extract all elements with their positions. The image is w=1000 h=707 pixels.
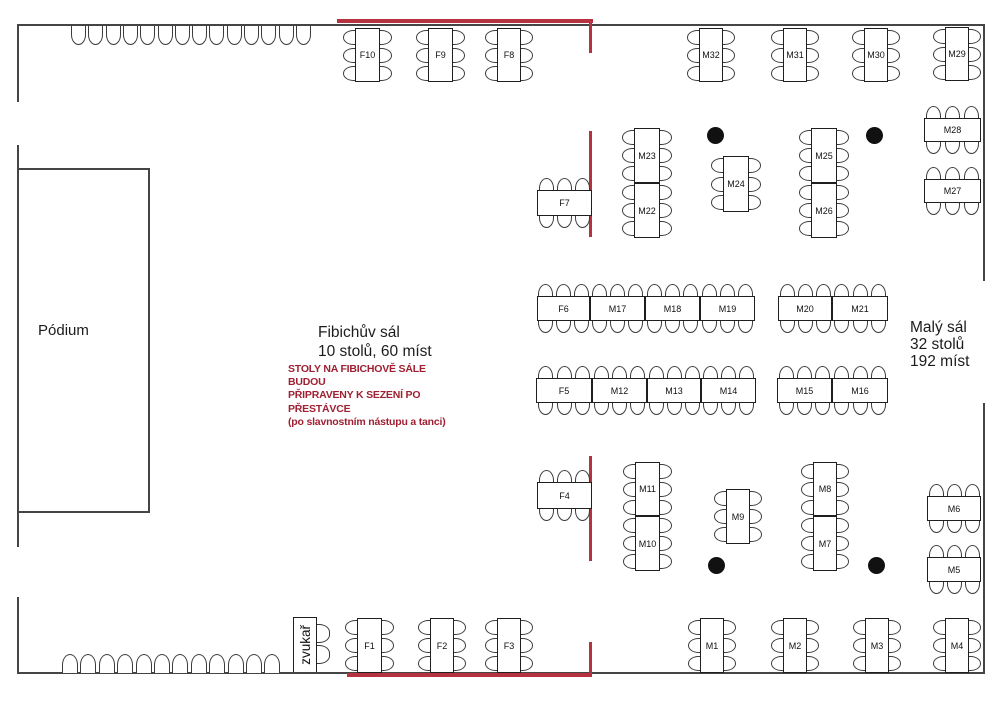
- chair: [244, 26, 259, 45]
- chair: [780, 320, 795, 333]
- chair: [88, 26, 103, 45]
- chair: [723, 656, 736, 671]
- chair: [379, 48, 392, 63]
- chair: [317, 624, 330, 643]
- chair: [965, 520, 980, 533]
- table-m14: M14: [701, 378, 756, 403]
- chair: [539, 508, 554, 521]
- chair: [836, 464, 849, 479]
- chair: [279, 26, 294, 45]
- table-m16: M16: [832, 378, 888, 403]
- maly-hall-label: Malý sál 32 stolů 192 míst: [910, 319, 969, 370]
- chair: [968, 65, 981, 80]
- chair: [945, 202, 960, 215]
- pillar: [707, 127, 724, 144]
- table-f7: F7: [537, 190, 592, 216]
- chair: [453, 620, 466, 635]
- chair: [836, 482, 849, 497]
- chair: [749, 491, 762, 506]
- chair: [574, 320, 589, 333]
- chair: [227, 26, 242, 45]
- chair: [649, 402, 664, 415]
- chair: [722, 30, 735, 45]
- table-m24: M24: [723, 156, 749, 212]
- chair: [659, 464, 672, 479]
- chair: [192, 26, 207, 45]
- chair: [123, 26, 138, 45]
- chair: [749, 509, 762, 524]
- chair: [659, 221, 672, 236]
- chair: [520, 656, 533, 671]
- chair: [71, 26, 86, 45]
- chair: [836, 221, 849, 236]
- wall-segment: [17, 145, 19, 547]
- table-m26: M26: [811, 183, 837, 238]
- table-m28: M28: [924, 118, 981, 142]
- chair: [261, 26, 276, 45]
- table-f8: F8: [497, 28, 521, 82]
- chair: [556, 320, 571, 333]
- pillar: [708, 557, 725, 574]
- chair: [836, 500, 849, 515]
- chair: [887, 48, 900, 63]
- chair: [871, 402, 886, 415]
- pillar: [866, 127, 883, 144]
- chair: [836, 203, 849, 218]
- chair: [539, 215, 554, 228]
- chair: [520, 66, 533, 81]
- chair: [106, 26, 121, 45]
- chair: [815, 402, 830, 415]
- table-m25: M25: [811, 128, 837, 183]
- wall-segment: [17, 24, 19, 102]
- chair: [853, 402, 868, 415]
- chair: [228, 654, 244, 673]
- chair: [140, 26, 155, 45]
- chair: [659, 185, 672, 200]
- chair: [685, 402, 700, 415]
- chair: [720, 320, 735, 333]
- chair: [379, 66, 392, 81]
- table-m13: M13: [647, 378, 701, 403]
- chair: [748, 195, 761, 210]
- chair: [381, 656, 394, 671]
- chair: [659, 482, 672, 497]
- chair: [947, 520, 962, 533]
- chair: [926, 202, 941, 215]
- chair: [836, 185, 849, 200]
- chair: [665, 320, 680, 333]
- chair: [191, 654, 207, 673]
- table-m4: M4: [945, 618, 969, 673]
- chair: [158, 26, 173, 45]
- chair: [659, 500, 672, 515]
- wall-segment: [17, 597, 19, 674]
- chair: [798, 320, 813, 333]
- chair: [968, 656, 981, 671]
- chair: [667, 402, 682, 415]
- chair: [887, 30, 900, 45]
- red-partition: [347, 673, 592, 677]
- chair: [452, 48, 465, 63]
- chair: [592, 320, 607, 333]
- table-m31: M31: [783, 28, 807, 82]
- chair: [806, 30, 819, 45]
- chair: [683, 320, 698, 333]
- chair: [246, 654, 262, 673]
- chair: [62, 654, 78, 673]
- chair: [749, 527, 762, 542]
- chair: [209, 654, 225, 673]
- table-m29: M29: [945, 27, 969, 81]
- chair: [722, 48, 735, 63]
- chair: [520, 48, 533, 63]
- table-m3: M3: [865, 618, 889, 673]
- chair: [610, 320, 625, 333]
- chair: [968, 638, 981, 653]
- chair: [853, 320, 868, 333]
- chair: [538, 402, 553, 415]
- chair: [888, 638, 901, 653]
- chair: [929, 520, 944, 533]
- chair: [748, 158, 761, 173]
- chair: [836, 148, 849, 163]
- table-f10: F10: [355, 28, 380, 82]
- chair: [702, 320, 717, 333]
- chair: [888, 656, 901, 671]
- table-m9: M9: [726, 489, 750, 544]
- chair: [836, 554, 849, 569]
- red-partition: [589, 19, 592, 53]
- sound-engineer-label: zvukař: [298, 625, 313, 665]
- table-m2: M2: [783, 618, 807, 673]
- chair: [453, 656, 466, 671]
- chair: [659, 518, 672, 533]
- wall-segment: [983, 24, 985, 281]
- chair: [834, 402, 849, 415]
- chair: [806, 638, 819, 653]
- chair: [379, 30, 392, 45]
- chair: [806, 66, 819, 81]
- chair: [748, 177, 761, 192]
- chair: [612, 402, 627, 415]
- table-m19: M19: [700, 296, 755, 321]
- chair: [723, 638, 736, 653]
- chair: [836, 518, 849, 533]
- chair: [836, 166, 849, 181]
- wall-segment: [983, 403, 985, 674]
- chair: [296, 26, 311, 45]
- chair: [871, 320, 886, 333]
- pillar: [868, 557, 885, 574]
- table-f6: F6: [537, 296, 590, 321]
- chair: [628, 320, 643, 333]
- chair: [887, 66, 900, 81]
- chair: [317, 645, 330, 664]
- table-f1: F1: [357, 618, 382, 673]
- chair: [117, 654, 133, 673]
- chair: [264, 654, 280, 673]
- seating-note: STOLY NA FIBICHOVĚ SÁLE BUDOU PŘIPRAVENY…: [288, 363, 463, 429]
- table-m15: M15: [777, 378, 832, 403]
- chair: [964, 141, 979, 154]
- table-m21: M21: [832, 296, 888, 321]
- chair: [964, 202, 979, 215]
- fibich-hall-label: Fibichův sál 10 stolů, 60 míst: [318, 323, 432, 361]
- table-m17: M17: [590, 296, 645, 321]
- chair: [926, 141, 941, 154]
- chair: [630, 402, 645, 415]
- table-m30: M30: [864, 28, 888, 82]
- chair: [659, 130, 672, 145]
- table-f4: F4: [537, 482, 592, 509]
- chair: [557, 402, 572, 415]
- chair: [721, 402, 736, 415]
- chair: [968, 47, 981, 62]
- table-m12: M12: [592, 378, 647, 403]
- table-f2: F2: [430, 618, 454, 673]
- chair: [739, 402, 754, 415]
- chair: [816, 320, 831, 333]
- table-m8: M8: [813, 462, 837, 516]
- table-m22: M22: [634, 183, 660, 238]
- table-m20: M20: [778, 296, 832, 321]
- table-m6: M6: [927, 496, 981, 521]
- chair: [968, 29, 981, 44]
- table-f5: F5: [536, 378, 592, 403]
- chair: [557, 215, 572, 228]
- red-partition: [337, 19, 593, 23]
- chair: [520, 620, 533, 635]
- chair: [452, 30, 465, 45]
- chair: [175, 26, 190, 45]
- chair: [806, 48, 819, 63]
- chair: [723, 620, 736, 635]
- table-m27: M27: [924, 179, 981, 203]
- chair: [888, 620, 901, 635]
- chair: [806, 656, 819, 671]
- chair: [647, 320, 662, 333]
- chair: [929, 581, 944, 594]
- chair: [659, 536, 672, 551]
- chair: [381, 620, 394, 635]
- chair: [968, 620, 981, 635]
- podium-stage: [17, 168, 150, 513]
- table-f3: F3: [497, 618, 521, 673]
- podium-label: Pódium: [38, 322, 89, 339]
- chair: [659, 203, 672, 218]
- table-m7: M7: [813, 516, 837, 571]
- chair: [80, 654, 96, 673]
- chair: [154, 654, 170, 673]
- table-m18: M18: [645, 296, 700, 321]
- chair: [703, 402, 718, 415]
- chair: [136, 654, 152, 673]
- red-partition: [589, 642, 592, 677]
- chair: [722, 66, 735, 81]
- table-f9: F9: [428, 28, 453, 82]
- table-m32: M32: [699, 28, 723, 82]
- chair: [836, 130, 849, 145]
- chair: [452, 66, 465, 81]
- chair: [836, 536, 849, 551]
- chair: [99, 654, 115, 673]
- chair: [520, 30, 533, 45]
- sound-engineer-desk: zvukař: [293, 617, 317, 673]
- chair: [947, 581, 962, 594]
- chair: [659, 554, 672, 569]
- chair: [659, 148, 672, 163]
- chair: [381, 638, 394, 653]
- chair: [575, 402, 590, 415]
- venue-floorplan: Pódium Fibichův sál 10 stolů, 60 míst Ma…: [0, 0, 1000, 707]
- chair: [594, 402, 609, 415]
- table-m10: M10: [635, 516, 660, 571]
- chair: [520, 638, 533, 653]
- chair: [945, 141, 960, 154]
- table-m1: M1: [700, 618, 724, 673]
- chair: [172, 654, 188, 673]
- chair: [806, 620, 819, 635]
- table-m5: M5: [927, 557, 981, 582]
- chair: [453, 638, 466, 653]
- chair: [965, 581, 980, 594]
- chair: [557, 508, 572, 521]
- chair: [659, 166, 672, 181]
- chair: [209, 26, 224, 45]
- table-m23: M23: [634, 128, 660, 183]
- chair: [779, 402, 794, 415]
- chair: [834, 320, 849, 333]
- chair: [797, 402, 812, 415]
- chair: [738, 320, 753, 333]
- table-m11: M11: [635, 462, 660, 516]
- chair: [538, 320, 553, 333]
